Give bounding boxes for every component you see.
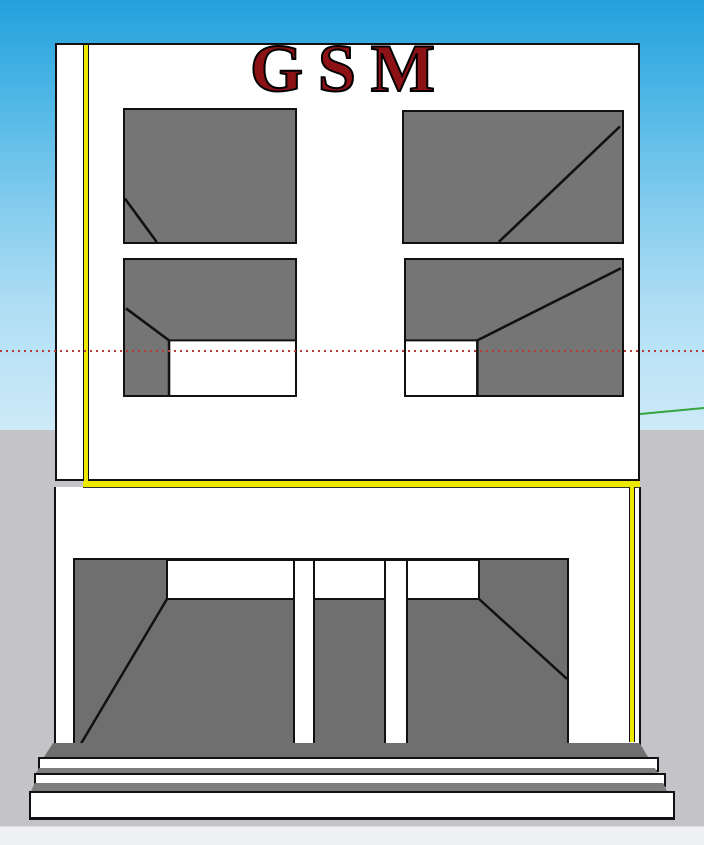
step-riser-3[interactable]	[29, 791, 675, 820]
window-bottom-right[interactable]	[404, 258, 624, 397]
window-top-right-detail	[404, 112, 622, 242]
storefront-interior-detail	[75, 560, 567, 747]
entrance-platform[interactable]	[44, 743, 648, 757]
yellow-trim-horizontal	[83, 481, 640, 488]
window-edge-line	[125, 199, 157, 242]
window-bottom-left[interactable]	[123, 258, 297, 397]
interior-edge-line	[479, 599, 567, 679]
window-top-left-detail	[125, 110, 295, 242]
transom-window-band	[167, 560, 479, 599]
window-inner-wall-face	[406, 340, 477, 395]
viewport-bottom-strip	[0, 826, 704, 845]
window-edge-line	[499, 126, 620, 242]
window-edge-line	[126, 308, 169, 340]
window-top-left[interactable]	[123, 108, 297, 244]
window-top-right[interactable]	[402, 110, 624, 244]
entrance-pillar-left	[294, 560, 314, 744]
storefront-opening[interactable]	[73, 558, 569, 747]
yellow-trim-right	[629, 487, 635, 742]
window-inner-wall-face	[169, 340, 295, 395]
yellow-trim-left	[83, 45, 89, 481]
modeling-viewport[interactable]: GSM	[0, 0, 704, 845]
window-bottom-left-detail	[125, 260, 295, 395]
building-sign-text[interactable]: GSM	[130, 36, 570, 100]
interior-edge-line	[79, 599, 167, 747]
red-dotted-axis-line	[0, 350, 704, 352]
window-bottom-right-detail	[406, 260, 622, 395]
window-edge-line	[477, 268, 621, 340]
step-tread-2	[31, 783, 667, 791]
entrance-pillar-right	[385, 560, 407, 744]
